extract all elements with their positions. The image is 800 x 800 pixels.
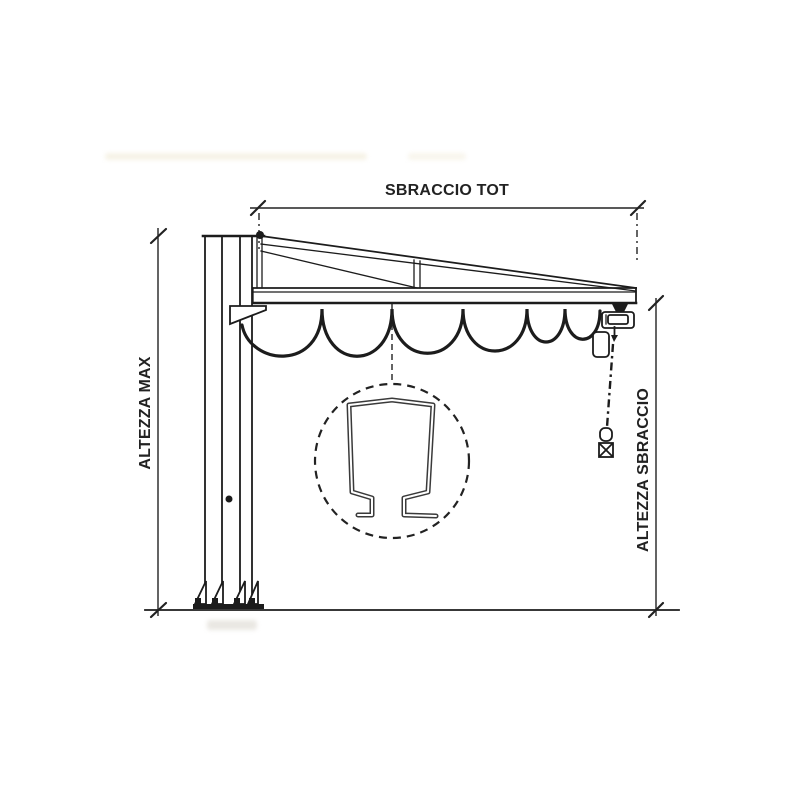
trolley-clamp [612,304,628,312]
pivot-pin [256,231,264,239]
anchor-bolt [234,598,240,604]
festoon-cable [242,309,600,356]
scan-smudge [105,153,367,160]
runway-beam [253,288,636,303]
column-bolt [226,496,233,503]
scan-smudge [408,153,466,160]
detail-circle [315,384,469,538]
jib-truss-arm [261,236,636,291]
label-sbraccio-tot: SBRACCIO TOT [385,182,509,200]
diagonal-brace [261,251,417,288]
chain-bag [593,332,609,357]
chain-link [600,428,612,441]
beam-profile-section [349,400,436,516]
base-plate [193,581,264,609]
beam-profile-detail-callout [315,304,469,538]
dimension-sbraccio-tot [250,201,645,262]
anchor-bolt [195,598,201,604]
anchor-bolt [249,598,255,604]
crane-drawing-svg [0,0,800,800]
label-altezza-max: ALTEZZA MAX [137,356,155,469]
second-chord [261,244,636,291]
scan-smudge [207,620,257,630]
anchor-bolt [212,598,218,604]
top-chord [261,236,636,288]
slewing-bracket [230,306,266,324]
hoist-hook-tip [611,335,618,342]
label-altezza-sbraccio: ALTEZZA SBRACCIO [635,388,653,552]
hoist-motor [608,315,628,324]
hook-block [599,428,613,457]
jib-crane-technical-drawing: SBRACCIO TOT ALTEZZA MAX ALTEZZA SBRACCI… [0,0,800,800]
